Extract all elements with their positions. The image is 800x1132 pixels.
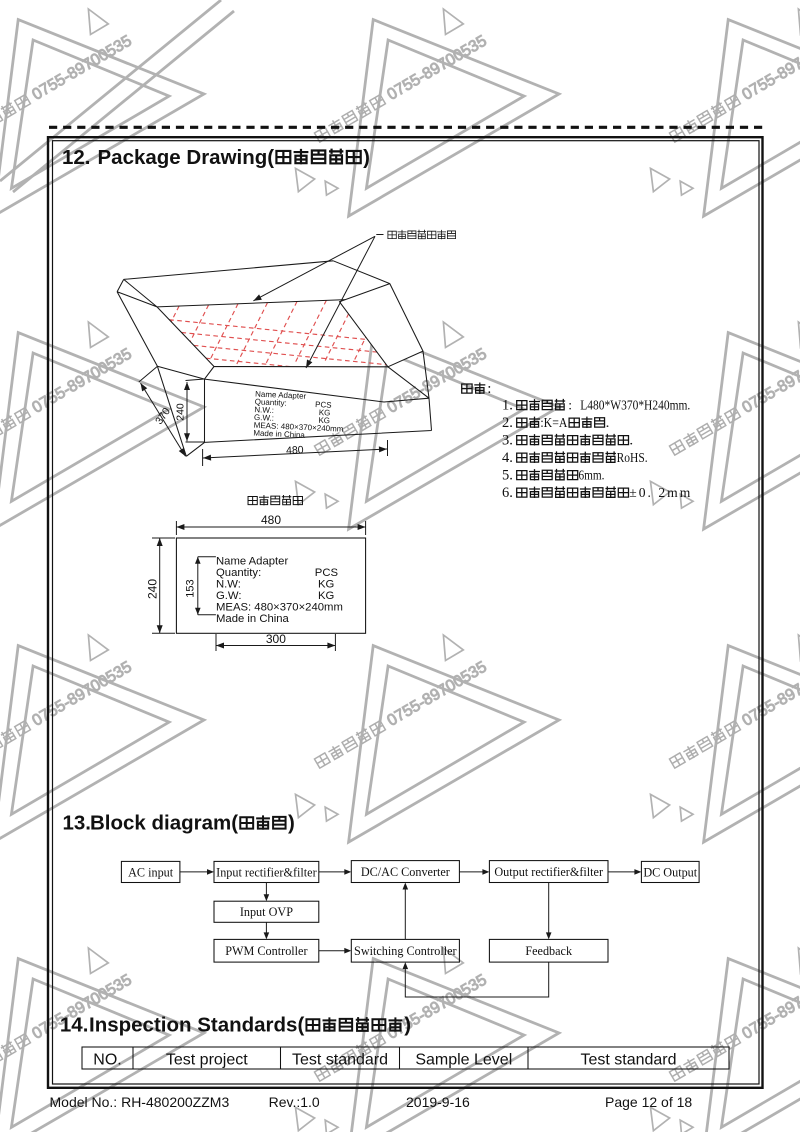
svg-text:Block diagram(: Block diagram( <box>90 812 238 835</box>
svg-text:6mm.: 6mm. <box>579 468 605 483</box>
svg-text:2.: 2. <box>502 415 513 431</box>
svg-text:RoHS.: RoHS. <box>617 450 648 465</box>
svg-text:Feedback: Feedback <box>525 944 573 958</box>
svg-text:NO.: NO. <box>93 1052 121 1069</box>
svg-text:5.: 5. <box>502 468 513 484</box>
svg-text:300: 300 <box>266 632 286 646</box>
svg-text:14.: 14. <box>60 1014 89 1037</box>
svg-text:AC input: AC input <box>128 865 174 879</box>
svg-text:KG: KG <box>318 416 330 426</box>
svg-text:Switching Controller: Switching Controller <box>354 944 457 958</box>
svg-text:240: 240 <box>146 579 160 599</box>
svg-text:DC Output: DC Output <box>643 865 697 879</box>
svg-text:0755-89700535: 0755-89700535 <box>29 33 134 104</box>
svg-text:Package Drawing(: Package Drawing( <box>98 146 275 169</box>
svg-text:153: 153 <box>185 579 197 597</box>
svg-text:Made in China: Made in China <box>253 428 305 439</box>
svg-text:PWM Controller: PWM Controller <box>225 944 307 958</box>
svg-text:3.: 3. <box>502 433 513 449</box>
svg-text:N.W:: N.W: <box>216 578 241 590</box>
svg-text:Output rectifier&filter: Output rectifier&filter <box>494 865 603 879</box>
svg-text:Input OVP: Input OVP <box>240 905 293 919</box>
svg-text:): ) <box>288 812 295 835</box>
svg-text:Test standard: Test standard <box>292 1052 388 1069</box>
svg-text:12.: 12. <box>62 146 91 169</box>
svg-text:480: 480 <box>286 444 304 457</box>
svg-text:6.: 6. <box>502 485 513 501</box>
svg-text:240: 240 <box>175 403 187 421</box>
svg-text:1.: 1. <box>502 398 513 414</box>
svg-text:0755-89700535: 0755-89700535 <box>384 659 489 730</box>
svg-text:2019-9-16: 2019-9-16 <box>406 1094 470 1110</box>
svg-text:Name Adapter: Name Adapter <box>216 555 288 567</box>
svg-text:.: . <box>606 415 610 430</box>
svg-text:±0. 2mm: ±0. 2mm <box>629 485 690 500</box>
svg-text:KG: KG <box>318 578 334 590</box>
svg-text:0755-89700535: 0755-89700535 <box>384 33 489 104</box>
svg-text:Test project: Test project <box>166 1052 248 1069</box>
svg-text:0755-89700535: 0755-89700535 <box>29 659 134 730</box>
svg-text:Made in China: Made in China <box>216 613 290 625</box>
svg-text:0755-89700535: 0755-89700535 <box>29 346 134 417</box>
svg-text:Sample Level: Sample Level <box>415 1052 512 1069</box>
svg-text:PCS: PCS <box>315 567 339 579</box>
svg-text:480: 480 <box>261 513 281 527</box>
svg-text:.: . <box>629 433 633 448</box>
svg-text::K=A: :K=A <box>540 415 567 430</box>
svg-text:DC/AC Converter: DC/AC Converter <box>361 865 450 879</box>
svg-text:G.W:: G.W: <box>216 590 242 602</box>
svg-text:Page 12 of 18: Page 12 of 18 <box>605 1094 692 1110</box>
svg-text:): ) <box>404 1014 411 1037</box>
svg-text:Model No.: RH-480200ZZM3: Model No.: RH-480200ZZM3 <box>50 1094 230 1110</box>
svg-text:Inspection Standards(: Inspection Standards( <box>89 1014 304 1037</box>
svg-text::: : <box>568 398 572 413</box>
svg-text:L480*W370*H240mm.: L480*W370*H240mm. <box>580 398 690 413</box>
svg-text:Input rectifier&filter: Input rectifier&filter <box>216 865 317 879</box>
svg-text:13.: 13. <box>63 812 92 835</box>
svg-text:KG: KG <box>318 590 334 602</box>
svg-text:4.: 4. <box>502 450 513 466</box>
svg-text:Test standard: Test standard <box>580 1052 676 1069</box>
svg-text:Rev.:1.0: Rev.:1.0 <box>269 1094 320 1110</box>
svg-text:Quantity:: Quantity: <box>216 567 261 579</box>
svg-text::: : <box>487 381 491 397</box>
svg-text:): ) <box>363 146 370 169</box>
svg-text:MEAS: 480×370×240mm: MEAS: 480×370×240mm <box>216 601 343 613</box>
svg-text:0755-89700535: 0755-89700535 <box>384 972 489 1043</box>
